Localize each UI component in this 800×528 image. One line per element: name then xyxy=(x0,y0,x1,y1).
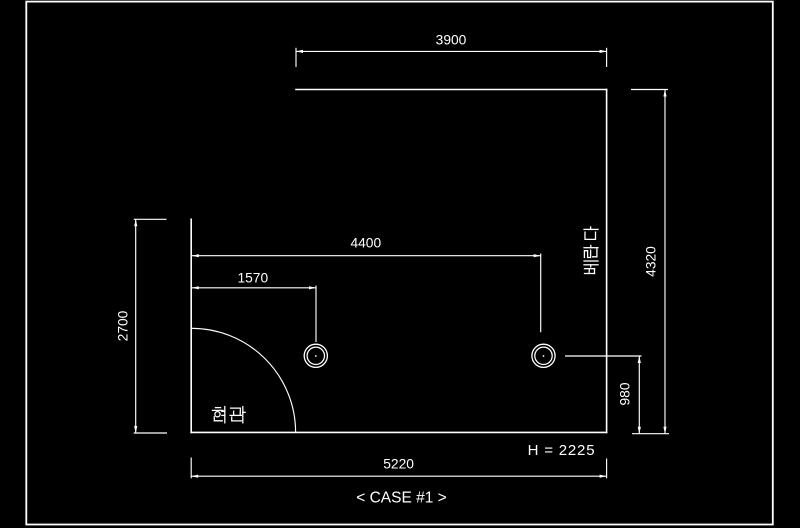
svg-text:H = 2225: H = 2225 xyxy=(528,442,596,459)
svg-text:980: 980 xyxy=(617,382,632,405)
svg-text:< CASE #1 >: < CASE #1 > xyxy=(356,489,446,506)
svg-text:1570: 1570 xyxy=(237,270,268,285)
svg-text:2700: 2700 xyxy=(115,310,130,341)
svg-text:4320: 4320 xyxy=(644,246,659,277)
svg-text:4400: 4400 xyxy=(350,235,381,250)
svg-text:3900: 3900 xyxy=(436,32,467,47)
svg-text:5220: 5220 xyxy=(383,456,414,471)
